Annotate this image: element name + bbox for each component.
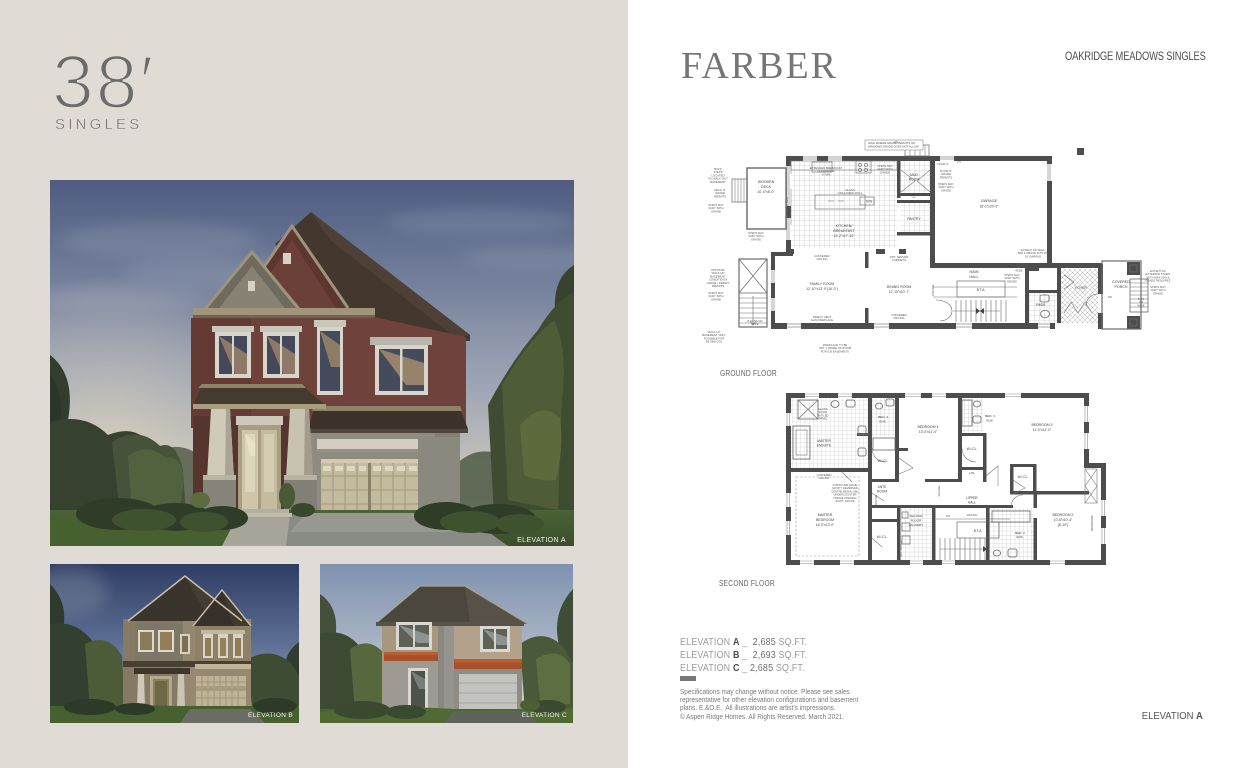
svg-text:BED. 4: BED. 4 xyxy=(878,415,888,419)
svg-text:WOODEN: WOODEN xyxy=(758,180,775,184)
svg-text:ENS.: ENS. xyxy=(879,420,886,424)
svg-text:OPT. UPPER: OPT. UPPER xyxy=(899,541,903,557)
svg-text:GRADE REQUIRED: GRADE REQUIRED xyxy=(1145,279,1170,283)
svg-text:FOR E.B EASEMENT): FOR E.B EASEMENT) xyxy=(821,349,849,353)
svg-text:FOYER: FOYER xyxy=(1075,286,1087,290)
svg-text:ANTE: ANTE xyxy=(878,485,888,489)
svg-text:PERMITS: PERMITS xyxy=(940,175,953,179)
svg-text:FLOOR: FLOOR xyxy=(911,519,922,523)
svg-text:3B OBS.COL: 3B OBS.COL xyxy=(706,340,723,344)
svg-text:GRADE: GRADE xyxy=(711,297,721,301)
svg-text:CABINETS: CABINETS xyxy=(892,258,906,262)
svg-text:BED. 3: BED. 3 xyxy=(985,414,995,418)
svg-text:ENSUITE: ENSUITE xyxy=(817,444,832,448)
svg-text:MAIN: MAIN xyxy=(970,270,979,274)
svg-text:RAILING: RAILING xyxy=(967,513,978,517)
svg-text:PANTRY: PANTRY xyxy=(907,217,921,221)
svg-text:ROOM: ROOM xyxy=(909,178,920,182)
svg-text:ORGANIZED WALL: ORGANIZED WALL xyxy=(838,191,863,195)
svg-text:12'-10"x10'-7": 12'-10"x10'-7" xyxy=(889,290,911,294)
svg-text:(8'-10"): (8'-10") xyxy=(1058,523,1069,527)
svg-text:FAMILY ROOM: FAMILY ROOM xyxy=(810,282,835,286)
svg-text:COVERED: COVERED xyxy=(1112,280,1130,284)
svg-text:UPPER: UPPER xyxy=(966,496,978,500)
svg-text:GRADE: GRADE xyxy=(1153,291,1163,295)
svg-text:BASEMENT: BASEMENT xyxy=(710,180,726,184)
svg-text:W.I.CL.: W.I.CL. xyxy=(1018,475,1029,479)
svg-text:PERMITS: PERMITS xyxy=(714,194,727,198)
svg-text:LAUNDRY: LAUNDRY xyxy=(909,523,924,527)
svg-text:BEDROOM 4: BEDROOM 4 xyxy=(917,425,938,429)
svg-text:BEDROOM: BEDROOM xyxy=(816,518,834,522)
svg-text:ELEVATION C: ELEVATION C xyxy=(522,712,567,719)
svg-text:W.I.CL.: W.I.CL. xyxy=(877,535,888,539)
svg-text:W.I.CL.: W.I.CL. xyxy=(878,459,889,463)
svg-text:HALL: HALL xyxy=(968,501,976,505)
svg-text:10'-0"x8'-0": 10'-0"x8'-0" xyxy=(757,190,775,194)
svg-text:KITCHEN/: KITCHEN/ xyxy=(836,224,853,228)
svg-text:16' GARAGE: 16' GARAGE xyxy=(1025,254,1042,258)
svg-text:MASTER: MASTER xyxy=(818,513,833,517)
svg-text:RAILING: RAILING xyxy=(874,495,878,506)
svg-text:GRADE: GRADE xyxy=(751,237,761,241)
svg-text:8'-0" CLG.: 8'-0" CLG. xyxy=(785,196,789,209)
svg-text:BEDROOM 2: BEDROOM 2 xyxy=(1052,513,1073,517)
svg-text:DOOR IF: DOOR IF xyxy=(938,162,949,166)
svg-text:DN: DN xyxy=(946,514,950,518)
svg-text:BREAKFAST: BREAKFAST xyxy=(833,229,855,233)
svg-text:ENS.: ENS. xyxy=(1016,535,1023,539)
svg-text:WINDOWS GRADE DOES NOT ALLOW: WINDOWS GRADE DOES NOT ALLOW xyxy=(868,145,919,149)
svg-text:WARDROBE: WARDROBE xyxy=(1090,515,1094,531)
svg-text:BEDROOM 3: BEDROOM 3 xyxy=(1031,423,1052,427)
svg-text:GRADE: GRADE xyxy=(941,188,951,192)
svg-text:DECK: DECK xyxy=(761,185,772,189)
svg-text:DINING ROOM: DINING ROOM xyxy=(887,285,912,289)
svg-text:WIDE: WIDE xyxy=(1015,268,1022,272)
svg-text:RAILING: RAILING xyxy=(931,284,935,295)
svg-text:13'-0"x11'-0": 13'-0"x11'-0" xyxy=(919,430,938,434)
svg-text:&/OPT. OFFICE: &/OPT. OFFICE xyxy=(835,499,854,503)
svg-text:10'-8"x10'-4": 10'-8"x10'-4" xyxy=(1054,518,1073,522)
svg-text:11'-0"x12'-0": 11'-0"x12'-0" xyxy=(1033,428,1052,432)
svg-text:B.T.A.: B.T.A. xyxy=(977,288,986,292)
svg-text:WIDE: WIDE xyxy=(1137,303,1144,307)
svg-text:DN: DN xyxy=(1108,295,1112,299)
svg-text:SECOND: SECOND xyxy=(909,514,923,518)
svg-text:DN: DN xyxy=(894,140,898,144)
svg-text:WIDE: WIDE xyxy=(751,322,758,326)
svg-text:MASTER: MASTER xyxy=(817,439,831,443)
svg-text:MUD: MUD xyxy=(910,173,918,177)
svg-text:16'-0"x13'-0": 16'-0"x13'-0" xyxy=(816,523,835,527)
svg-text:PORCH: PORCH xyxy=(1115,285,1128,289)
svg-text:CEILING: CEILING xyxy=(819,476,830,480)
svg-text:ELEVATION A: ELEVATION A xyxy=(517,537,566,544)
svg-text:CL.: CL. xyxy=(912,195,917,199)
svg-text:GARAGE: GARAGE xyxy=(981,199,998,203)
svg-text:GAS FIREPLACE: GAS FIREPLACE xyxy=(811,318,833,322)
svg-text:B.T.A.: B.T.A. xyxy=(974,529,983,533)
svg-text:CEILING: CEILING xyxy=(816,257,827,261)
svg-text:RAILING: RAILING xyxy=(1025,276,1029,287)
svg-text:GRADE: GRADE xyxy=(711,209,721,213)
svg-text:ROOM: ROOM xyxy=(877,490,888,494)
svg-text:PANEL: PANEL xyxy=(819,417,828,421)
svg-text:DN: DN xyxy=(957,160,961,164)
svg-text:GRADE: GRADE xyxy=(1007,279,1017,283)
svg-text:ELEVATION B: ELEVATION B xyxy=(248,712,293,719)
svg-text:ENS.: ENS. xyxy=(986,419,993,423)
svg-text:RAILING: RAILING xyxy=(937,486,941,497)
svg-text:15'-2"x17'-10": 15'-2"x17'-10" xyxy=(834,234,856,238)
svg-text:W.I.CL.: W.I.CL. xyxy=(967,447,978,451)
svg-text:18'-1"x20'-0": 18'-1"x20'-0" xyxy=(980,205,1000,209)
svg-text:LIN.: LIN. xyxy=(969,471,975,475)
svg-text:GRADE: GRADE xyxy=(880,170,890,174)
svg-text:PWDR.: PWDR. xyxy=(1036,303,1047,307)
svg-text:12'-10"x13'-0"(16'-0"): 12'-10"x13'-0"(16'-0") xyxy=(806,287,838,291)
svg-text:PERMITS: PERMITS xyxy=(712,284,725,288)
svg-text:CEILING: CEILING xyxy=(893,316,904,320)
svg-text:D/W: D/W xyxy=(866,200,872,204)
svg-text:HALL: HALL xyxy=(970,275,979,279)
svg-text:-0" MIN.: -0" MIN. xyxy=(821,172,831,176)
